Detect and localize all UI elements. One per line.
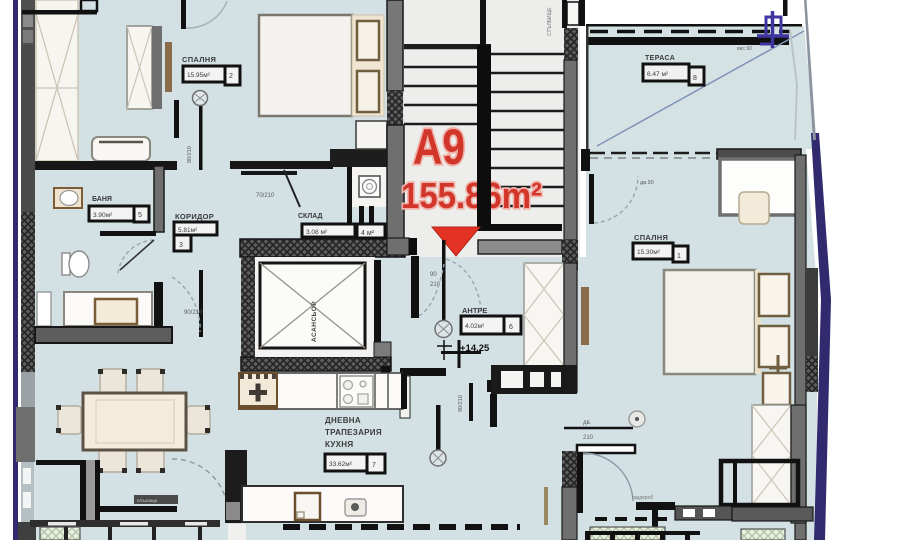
svg-text:КУХНЯ: КУХНЯ [325, 440, 353, 449]
svg-text:5: 5 [138, 212, 142, 219]
svg-text:90: 90 [430, 272, 437, 278]
svg-text:дв.: дв. [583, 420, 592, 426]
svg-text:A9: A9 [413, 119, 465, 175]
svg-text:90/210: 90/210 [458, 395, 464, 412]
svg-text:3: 3 [179, 242, 183, 249]
svg-text:6: 6 [509, 324, 513, 331]
svg-text:4.02м²: 4.02м² [465, 323, 485, 330]
svg-text:ДНЕВНА: ДНЕВНА [325, 416, 361, 425]
svg-text:КОРИДОР: КОРИДОР [175, 212, 214, 221]
svg-text:вис.90: вис.90 [737, 46, 752, 52]
svg-text:70/210: 70/210 [256, 193, 275, 199]
svg-text:5.81м²: 5.81м² [178, 227, 198, 234]
svg-text:90/210: 90/210 [184, 310, 203, 316]
svg-text:+14.25: +14.25 [460, 343, 490, 354]
svg-text:15.95м²: 15.95м² [187, 72, 211, 79]
svg-text:3.90м²: 3.90м² [93, 212, 113, 219]
svg-text:АСАНСЬОР: АСАНСЬОР [311, 301, 318, 342]
svg-text:3.08 м²: 3.08 м² [306, 229, 328, 236]
svg-text:7: 7 [372, 462, 376, 469]
svg-text:155.86m²: 155.86m² [401, 175, 542, 216]
svg-text:8: 8 [693, 75, 697, 82]
svg-text:плъзгаща: плъзгаща [137, 498, 158, 503]
svg-text:дв.90: дв.90 [640, 180, 654, 186]
svg-text:ТЕРАСА: ТЕРАСА [645, 55, 675, 62]
svg-text:6.47 м²: 6.47 м² [647, 71, 669, 78]
svg-text:1: 1 [677, 253, 681, 260]
svg-text:СТЪЛБИЩЕ: СТЪЛБИЩЕ [547, 7, 553, 36]
svg-text:БАНЯ: БАНЯ [92, 196, 112, 203]
svg-text:15.30м²: 15.30м² [637, 249, 661, 256]
svg-text:СПАЛНЯ: СПАЛНЯ [634, 233, 668, 242]
svg-text:80/210: 80/210 [187, 146, 193, 163]
svg-text:СПАЛНЯ: СПАЛНЯ [182, 55, 216, 64]
svg-text:2: 2 [229, 73, 233, 80]
svg-text:210: 210 [583, 435, 594, 441]
svg-text:АНТРЕ: АНТРЕ [462, 306, 487, 315]
svg-text:СКЛАД: СКЛАД [298, 213, 323, 220]
svg-text:4 м²: 4 м² [361, 230, 375, 237]
svg-text:ТРАПЕЗАРИЯ: ТРАПЕЗАРИЯ [325, 428, 382, 437]
svg-text:гардероб: гардероб [632, 495, 653, 501]
svg-text:33.62м²: 33.62м² [329, 461, 353, 468]
